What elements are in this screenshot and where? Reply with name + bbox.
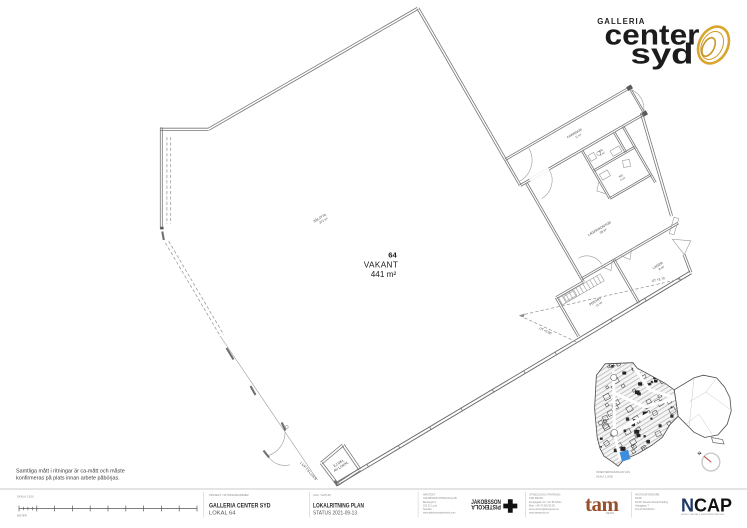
svg-text:LOKALRITNING PLAN: LOKALRITNING PLAN — [313, 503, 364, 510]
svg-text:Kungsgatan 37, 111 56 Sthlm: Kungsgatan 37, 111 56 Sthlm — [529, 501, 562, 504]
svg-text:JAKOBSSON PISTEKOLA AB: JAKOBSSON PISTEKOLA AB — [423, 497, 457, 500]
svg-text:NORDIC CAPITAL & INVESTMENT PA: NORDIC CAPITAL & INVESTMENT PARTNER — [681, 513, 725, 516]
svg-text:Bantorget 9: Bantorget 9 — [423, 501, 437, 504]
svg-text:64: 64 — [388, 251, 397, 260]
svg-text:anna.olsson@tamgroup.se: anna.olsson@tamgroup.se — [529, 508, 560, 511]
svg-text:LUFTSLUSS: LUFTSLUSS — [299, 461, 318, 482]
svg-text:GALLERIA CENTER SYD: GALLERIA CENTER SYD — [209, 503, 271, 510]
svg-text:LOKAL 64: LOKAL 64 — [209, 511, 236, 517]
svg-text:www.jakobssonpistekola.com: www.jakobssonpistekola.com — [423, 512, 456, 515]
svg-text:Vasagatan 7: Vasagatan 7 — [635, 504, 649, 507]
svg-text:ORIENTERINGSFIGUR VÅN: ORIENTERINGSFIGUR VÅN — [596, 469, 630, 474]
svg-text:METER: METER — [17, 514, 27, 518]
svg-text:441 m²: 441 m² — [371, 270, 397, 279]
svg-text:ARKITEKT: ARKITEKT — [423, 494, 436, 497]
svg-text:FASTIGHETSÄGARE: FASTIGHETSÄGARE — [635, 494, 660, 497]
svg-text:PROJEKT / RITNINGSNUMMER: PROJEKT / RITNINGSNUMMER — [209, 493, 249, 497]
svg-text:syd: syd — [631, 39, 694, 71]
svg-text:TAM RETAIL: TAM RETAIL — [529, 497, 544, 500]
svg-text:Sweden: Sweden — [423, 508, 433, 511]
svg-text:Samtliga mått i ritningar är c: Samtliga mått i ritningar är ca-mått och… — [16, 468, 125, 475]
svg-text:RETAIL: RETAIL — [606, 512, 615, 515]
svg-text:tam: tam — [585, 492, 619, 516]
svg-text:SKALA 1:100: SKALA 1:100 — [17, 495, 34, 499]
svg-text:ANV. / DATUM: ANV. / DATUM — [313, 493, 331, 497]
svg-text:STATUS 2021-09-13: STATUS 2021-09-13 — [313, 511, 357, 517]
svg-text:SKALA 1:2000: SKALA 1:2000 — [596, 475, 613, 479]
svg-text:111 20 Stockholm: 111 20 Stockholm — [635, 508, 655, 511]
svg-text:NCAP Sweden Retail Holding: NCAP Sweden Retail Holding — [635, 501, 668, 504]
svg-text:UT +3.90: UT +3.90 — [539, 326, 553, 335]
svg-text:222 21 Lund: 222 21 Lund — [423, 504, 438, 507]
svg-text:NCAP: NCAP — [681, 496, 732, 516]
svg-text:www.tamgroup.se: www.tamgroup.se — [529, 512, 549, 515]
svg-text:konfirmeras på plats innan arb: konfirmeras på plats innan arbete påbörj… — [16, 475, 120, 482]
svg-text:UT +2.70: UT +2.70 — [651, 276, 665, 283]
svg-text:N: N — [697, 450, 703, 456]
svg-text:Mob: +46 70 555 55 55: Mob: +46 70 555 55 55 — [529, 504, 555, 507]
svg-text:PISTEKOLA: PISTEKOLA — [471, 503, 501, 510]
svg-text:UTVECKLING/UTHYRNING: UTVECKLING/UTHYRNING — [529, 494, 561, 497]
svg-text:NCAP: NCAP — [635, 497, 642, 500]
svg-text:VAKANT: VAKANT — [364, 261, 399, 270]
